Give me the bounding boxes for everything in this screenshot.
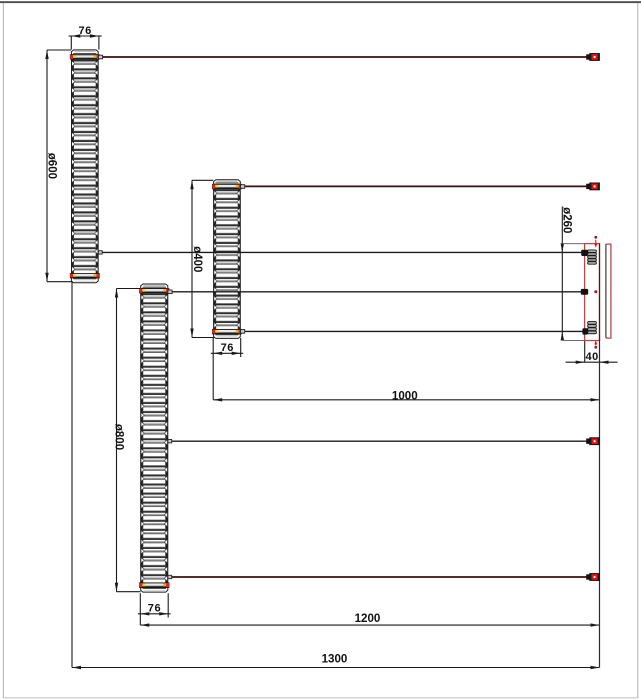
svg-text:ø400: ø400 — [191, 246, 203, 272]
svg-text:76: 76 — [221, 342, 234, 354]
svg-text:ø800: ø800 — [112, 424, 124, 450]
svg-text:40: 40 — [585, 351, 598, 363]
svg-text:ø600: ø600 — [45, 153, 57, 179]
svg-text:ø260: ø260 — [561, 207, 573, 233]
svg-text:1300: 1300 — [322, 653, 348, 666]
svg-text:76: 76 — [78, 25, 91, 37]
svg-text:1200: 1200 — [355, 612, 381, 625]
svg-text:76: 76 — [148, 603, 161, 615]
svg-text:1000: 1000 — [392, 389, 418, 402]
